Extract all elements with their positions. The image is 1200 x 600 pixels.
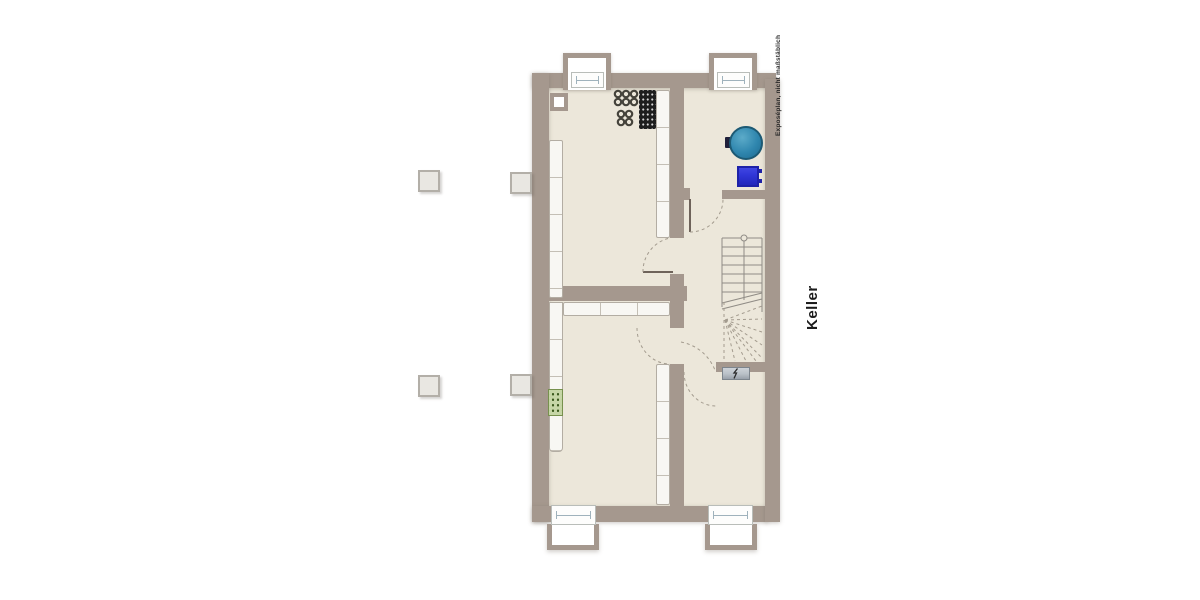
disclaimer-text: Exposéplan, nicht maßstäblich [775, 46, 782, 136]
staircase-icon [716, 230, 766, 376]
shelf-strip-partition-lower [656, 364, 670, 505]
stair-walkline [678, 336, 718, 372]
window-icon [717, 72, 750, 88]
pipe-rings-icon [613, 89, 639, 129]
window-icon [571, 72, 604, 88]
blue-tank-icon [737, 166, 759, 187]
boiler-room-wall [722, 190, 765, 199]
light-well-bottom-left [547, 524, 599, 550]
shelf-strip-left-upper [549, 140, 563, 298]
exterior-wall-right [765, 79, 780, 522]
interior-wall-horizontal [547, 286, 687, 301]
door-swing-arc-icon [635, 326, 675, 366]
duct-shaft-box [550, 93, 568, 111]
exterior-shaft-square [418, 170, 440, 192]
door-swing-arc-icon [637, 236, 677, 276]
green-drain-icon [548, 389, 563, 416]
tank-nub [758, 179, 762, 183]
shelf-strip-horizontal [563, 302, 670, 316]
perforated-panel-icon [639, 90, 656, 129]
tank-nub [758, 169, 762, 173]
door-swing-arc-icon [682, 370, 720, 408]
exterior-shaft-square [510, 172, 532, 194]
boiler-top-view-icon [729, 126, 763, 160]
shelf-strip-partition-upper [656, 90, 670, 238]
door-swing-arc-icon [686, 195, 726, 235]
light-well-bottom-right [705, 524, 757, 550]
floor-label: Keller [804, 268, 821, 330]
floor-plan-canvas: Keller Exposéplan, nicht maßstäblich [0, 0, 1200, 600]
window-icon [551, 505, 596, 525]
window-icon [708, 505, 753, 525]
exterior-shaft-square [510, 374, 532, 396]
shelf-strip-left-lower [549, 302, 563, 452]
partition-wall-upper [670, 88, 684, 238]
partition-wall-stub-lower [670, 301, 684, 328]
exterior-shaft-square [418, 375, 440, 397]
